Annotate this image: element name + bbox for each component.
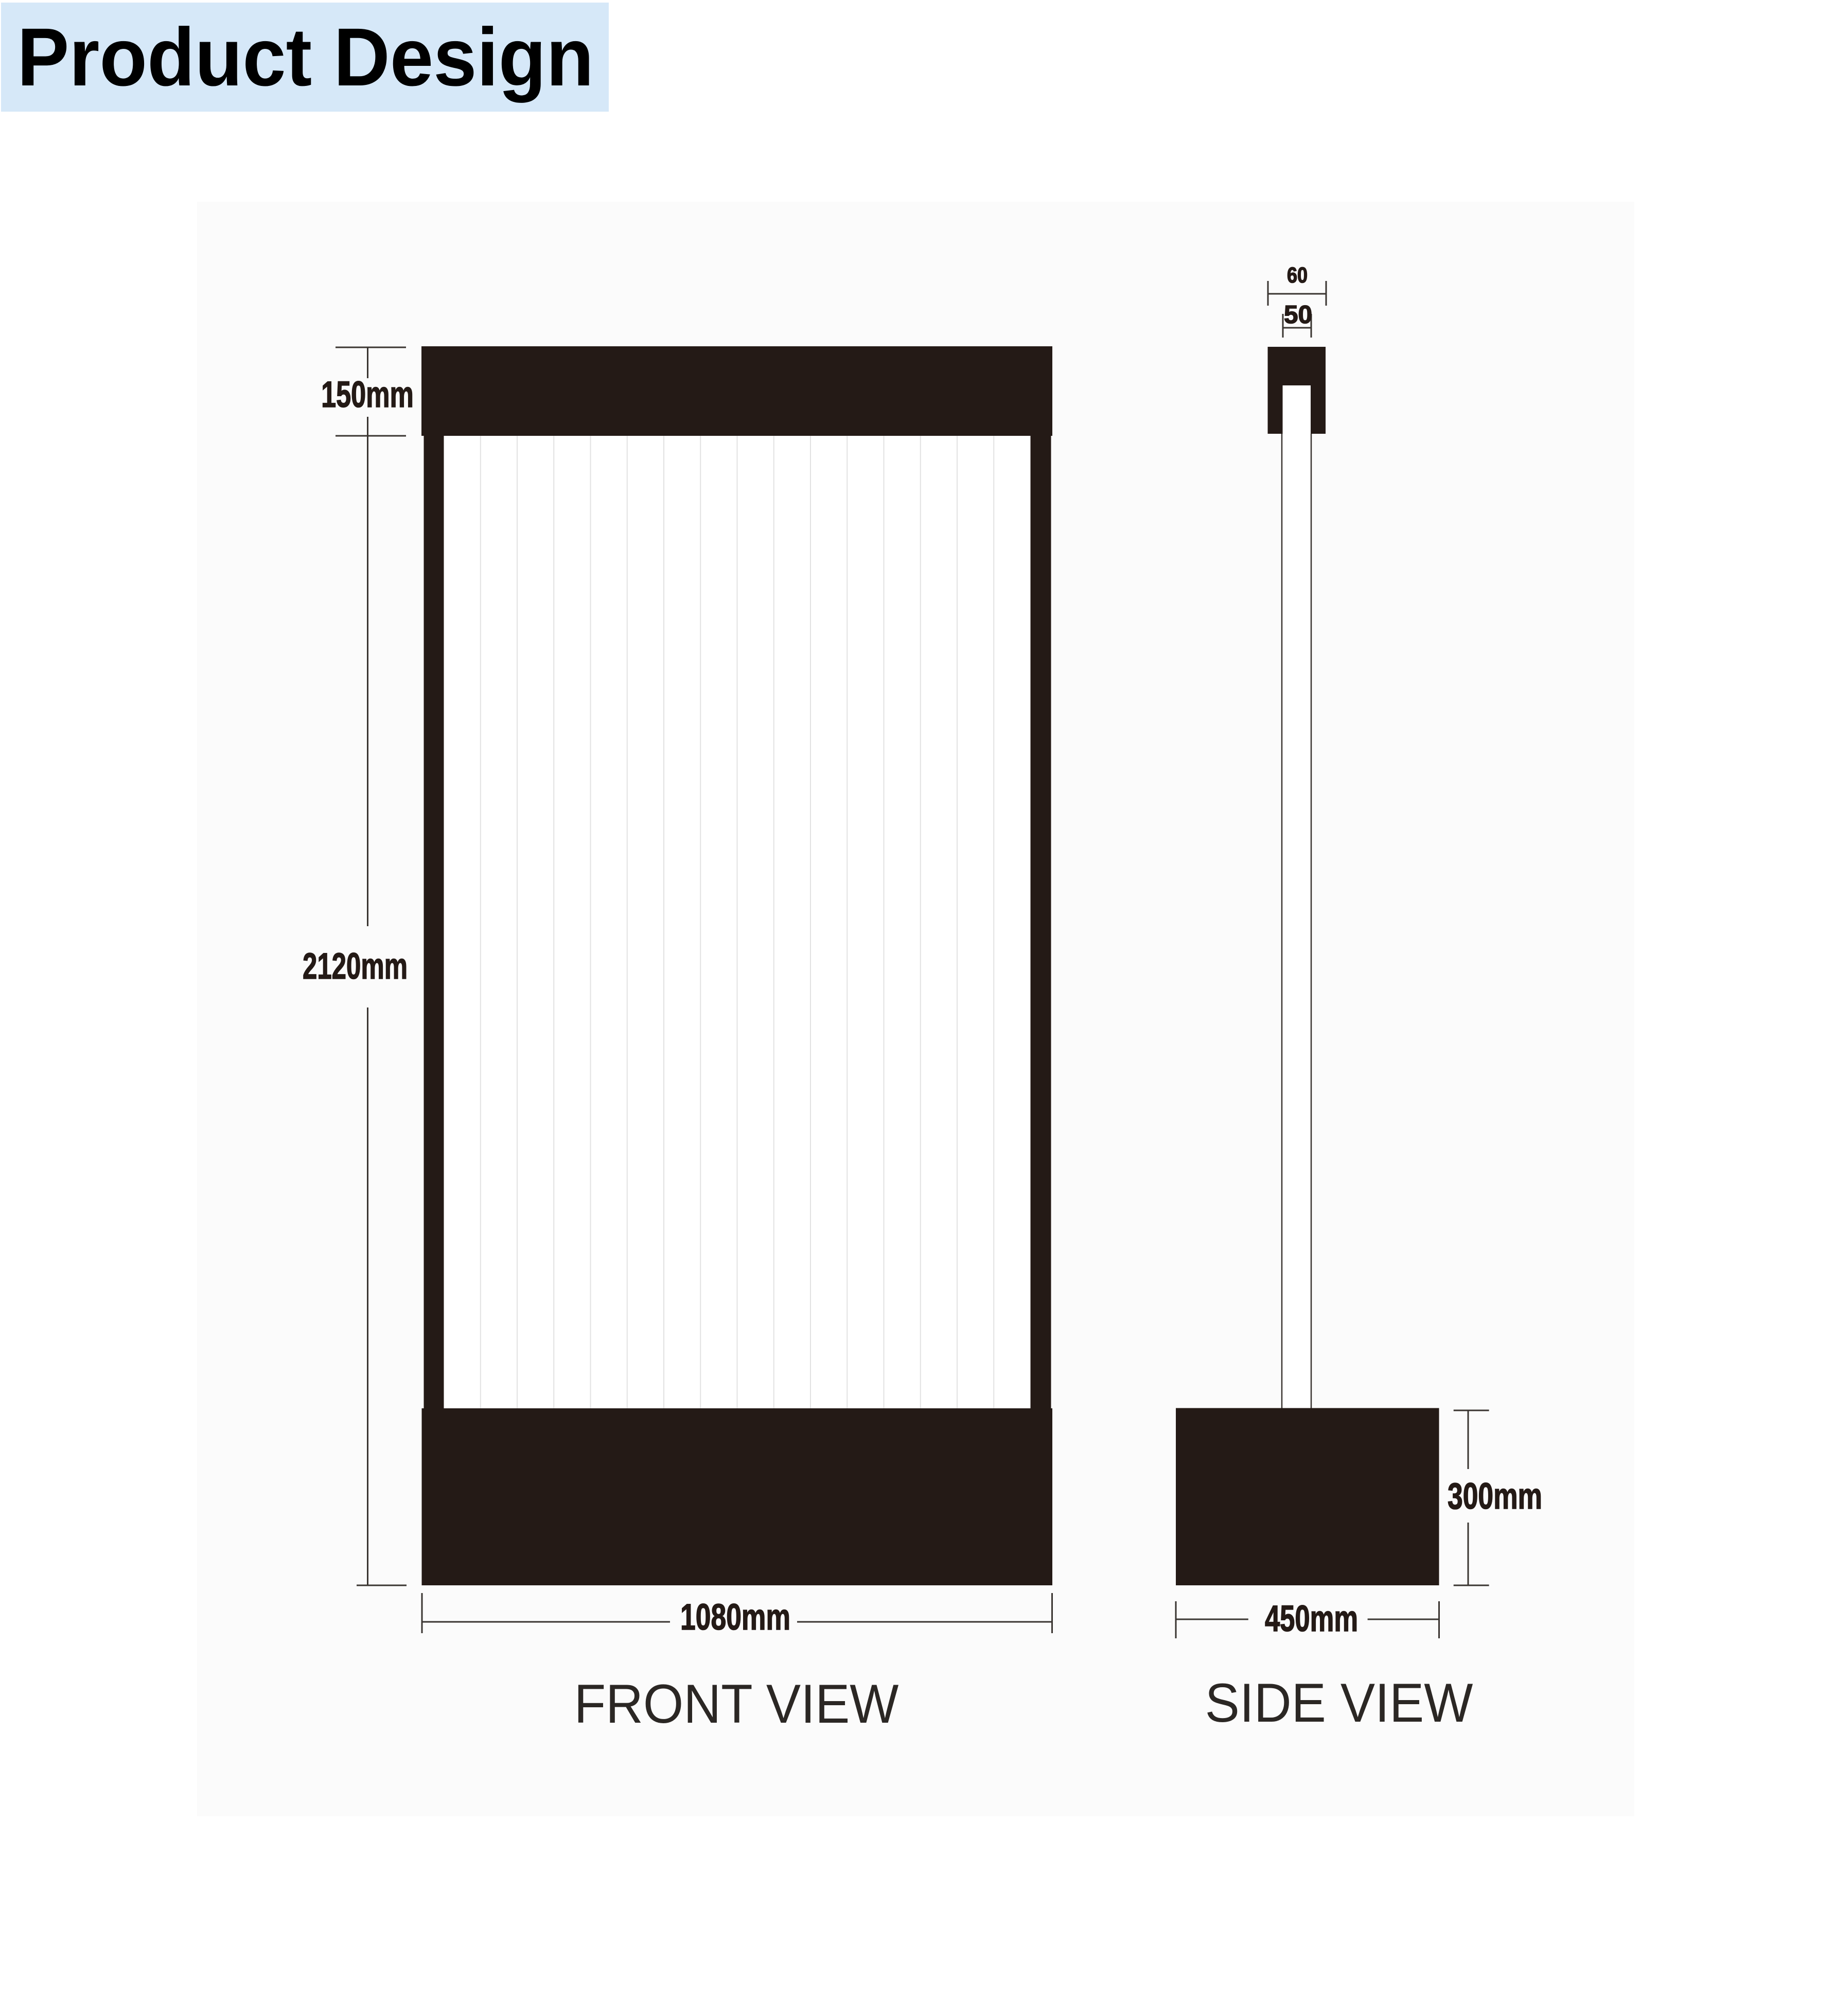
svg-text:50: 50 xyxy=(1284,300,1312,329)
svg-text:2120mm: 2120mm xyxy=(303,946,408,987)
svg-text:1080mm: 1080mm xyxy=(680,1597,790,1638)
svg-text:150mm: 150mm xyxy=(321,375,414,415)
svg-text:Product Design: Product Design xyxy=(17,11,594,103)
svg-text:300mm: 300mm xyxy=(1448,1476,1542,1517)
svg-text:FRONT VIEW: FRONT VIEW xyxy=(574,1673,899,1735)
svg-text:450mm: 450mm xyxy=(1265,1598,1358,1639)
svg-text:60: 60 xyxy=(1287,263,1308,288)
svg-text:SIDE VIEW: SIDE VIEW xyxy=(1205,1672,1473,1734)
